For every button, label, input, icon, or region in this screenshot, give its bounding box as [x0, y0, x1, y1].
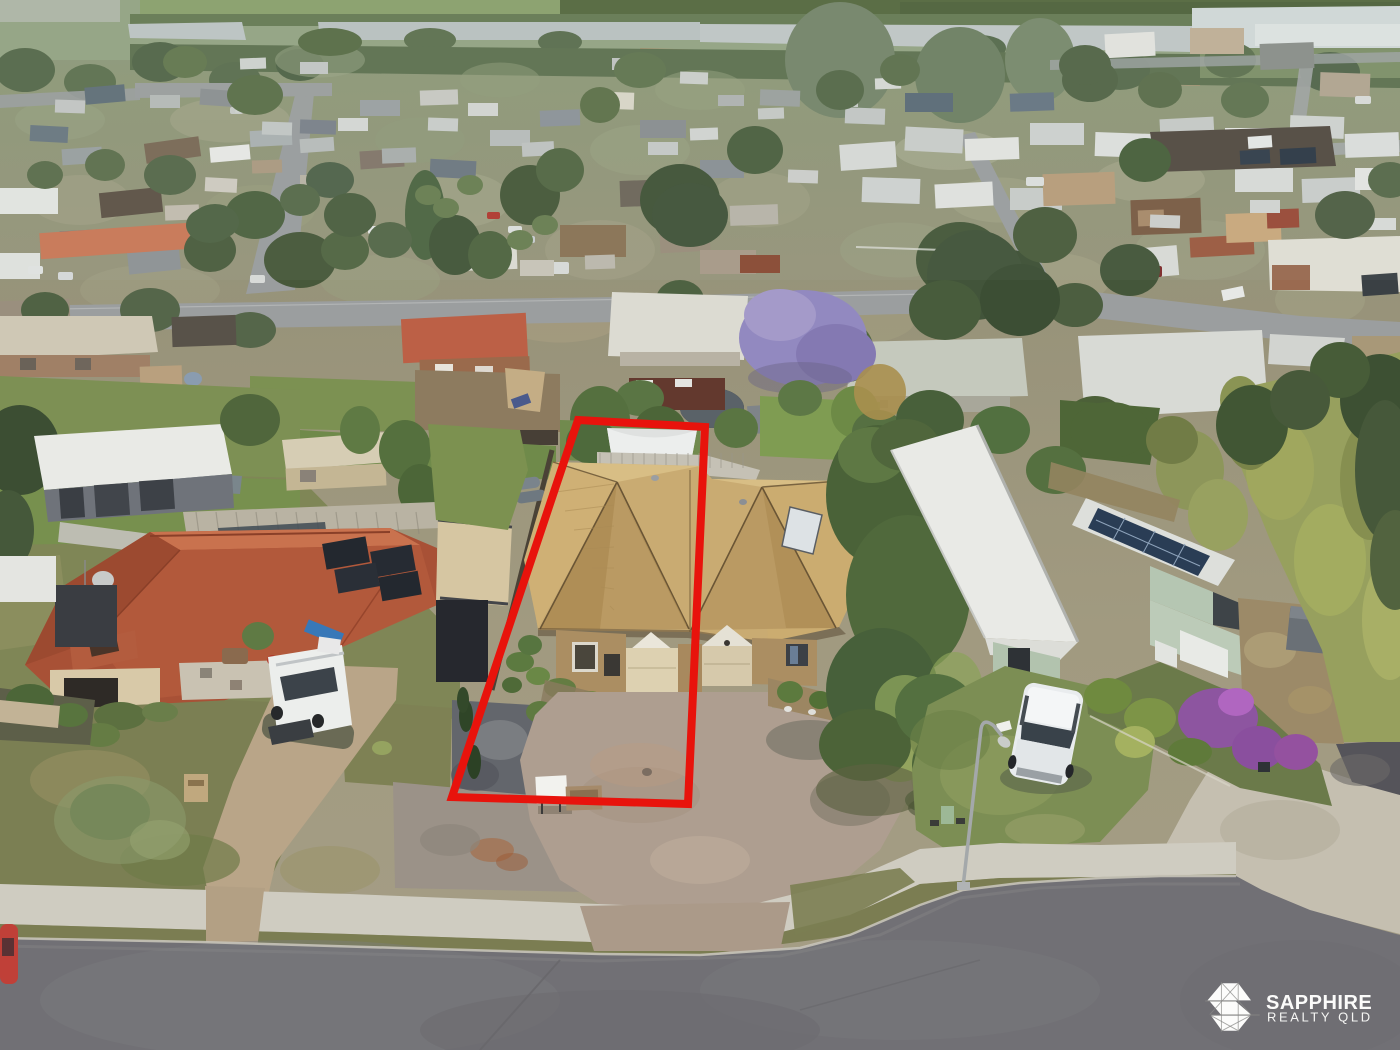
svg-text:REALTY QLD: REALTY QLD: [1267, 1010, 1373, 1025]
